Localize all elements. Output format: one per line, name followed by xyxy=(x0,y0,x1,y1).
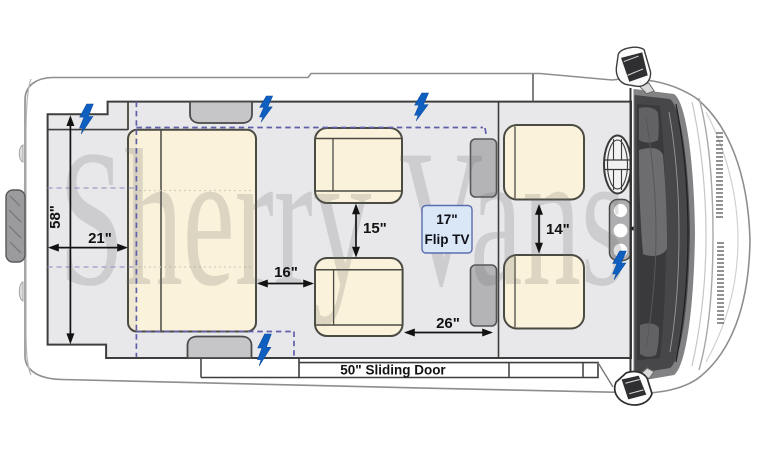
svg-text:17": 17" xyxy=(436,212,457,227)
svg-text:14": 14" xyxy=(546,221,570,238)
svg-text:58": 58" xyxy=(47,205,64,229)
svg-text:Sherry Vans: Sherry Vans xyxy=(59,109,627,326)
svg-text:15": 15" xyxy=(363,220,387,237)
svg-text:16": 16" xyxy=(274,264,298,281)
svg-text:50" Sliding Door: 50" Sliding Door xyxy=(340,363,446,378)
svg-text:26": 26" xyxy=(436,315,460,332)
svg-text:21": 21" xyxy=(88,230,112,247)
svg-text:Flip TV: Flip TV xyxy=(425,232,470,247)
